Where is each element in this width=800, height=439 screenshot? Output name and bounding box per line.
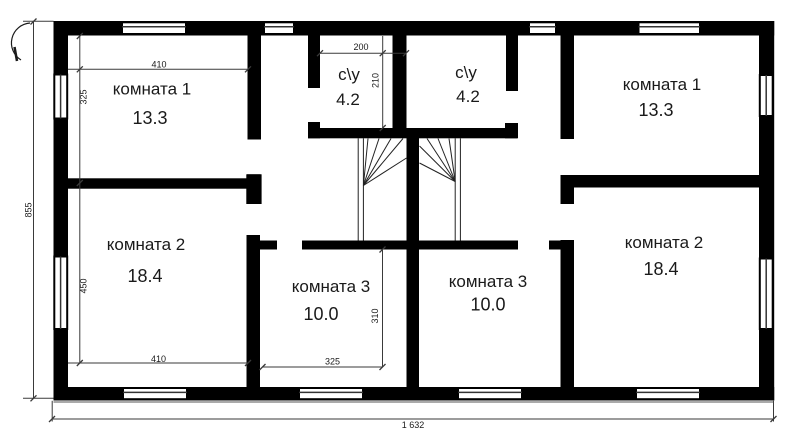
svg-text:4.2: 4.2 — [336, 90, 360, 109]
svg-text:410: 410 — [151, 60, 166, 70]
svg-text:с\у: с\у — [338, 65, 360, 84]
svg-text:210: 210 — [371, 73, 381, 88]
svg-text:комната 3: комната 3 — [292, 277, 370, 296]
svg-text:1 632: 1 632 — [402, 420, 425, 430]
svg-text:10.0: 10.0 — [470, 295, 505, 315]
svg-text:325: 325 — [325, 357, 340, 367]
svg-text:18.4: 18.4 — [643, 259, 678, 279]
svg-text:комната 3: комната 3 — [449, 272, 527, 291]
svg-text:13.3: 13.3 — [132, 108, 167, 128]
svg-text:комната 2: комната 2 — [625, 233, 703, 252]
svg-text:13.3: 13.3 — [638, 100, 673, 120]
svg-text:18.4: 18.4 — [127, 266, 162, 286]
svg-text:450: 450 — [79, 278, 89, 293]
svg-text:410: 410 — [151, 354, 166, 364]
svg-text:комната 1: комната 1 — [623, 75, 701, 94]
svg-text:10.0: 10.0 — [303, 304, 338, 324]
svg-text:200: 200 — [353, 42, 368, 52]
svg-text:325: 325 — [79, 89, 89, 104]
svg-text:с\у: с\у — [455, 63, 477, 82]
svg-text:комната 2: комната 2 — [107, 235, 185, 254]
svg-text:комната 1: комната 1 — [113, 80, 191, 99]
svg-text:4.2: 4.2 — [456, 87, 480, 106]
svg-text:855: 855 — [24, 202, 34, 217]
svg-text:310: 310 — [370, 308, 380, 323]
